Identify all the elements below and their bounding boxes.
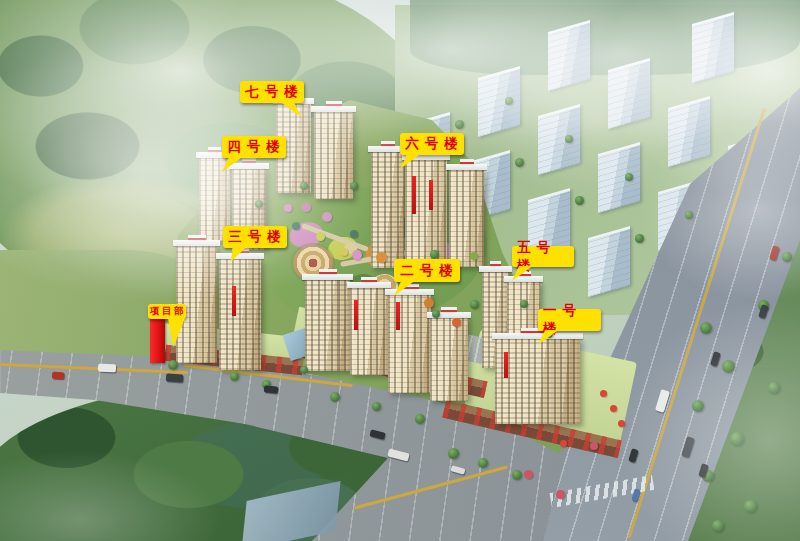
label-building-1: 一号楼 [538, 309, 601, 331]
label-building-5: 五号楼 [512, 246, 574, 267]
label-text: 四号楼 [227, 138, 286, 156]
label-text: 六号楼 [405, 135, 464, 153]
label-text: 二号楼 [400, 262, 459, 280]
label-building-2: 二号楼 [394, 259, 460, 282]
label-building-6: 六号楼 [400, 133, 464, 155]
label-building-7: 七号楼 [240, 81, 304, 103]
label-building-3: 三号楼 [223, 226, 287, 248]
label-text: 项目部 [150, 305, 186, 318]
forest-band-top-right [410, 0, 800, 75]
label-project-office: 项目部 [148, 304, 186, 319]
label-text: 三号楼 [228, 228, 287, 246]
fountain [344, 243, 357, 254]
site-aerial-rendering: 七号楼 四号楼 六号楼 三号楼 二号楼 五号楼 一号楼 项目部 [0, 0, 800, 541]
label-building-4: 四号楼 [222, 136, 286, 158]
circular-plaza [293, 245, 333, 281]
project-office-marker [150, 318, 165, 363]
label-text: 七号楼 [245, 83, 304, 101]
